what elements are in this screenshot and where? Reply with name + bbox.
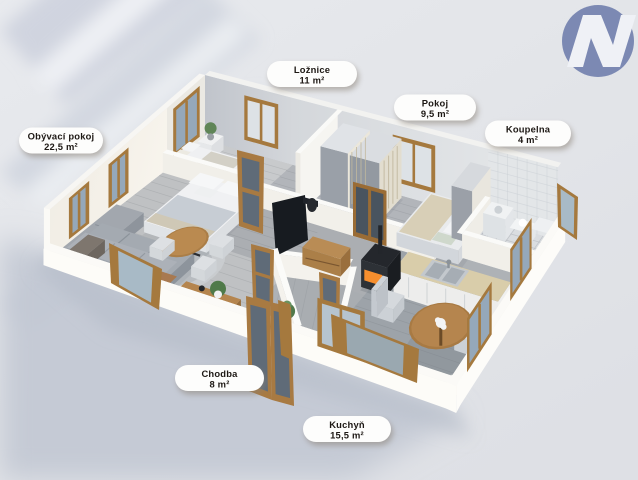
svg-text:Pokoj: Pokoj bbox=[422, 98, 449, 109]
svg-text:Kuchyň: Kuchyň bbox=[329, 419, 365, 430]
svg-text:15,5 m²: 15,5 m² bbox=[330, 430, 364, 441]
svg-text:Koupelna: Koupelna bbox=[506, 124, 551, 135]
svg-text:9,5 m²: 9,5 m² bbox=[421, 108, 449, 119]
svg-text:4 m²: 4 m² bbox=[518, 134, 538, 145]
svg-text:Obývací pokoj: Obývací pokoj bbox=[28, 131, 95, 142]
svg-text:Ložnice: Ložnice bbox=[294, 64, 330, 75]
svg-text:11 m²: 11 m² bbox=[300, 75, 325, 86]
svg-text:22,5 m²: 22,5 m² bbox=[44, 141, 78, 152]
svg-text:Chodba: Chodba bbox=[201, 368, 238, 379]
svg-text:8 m²: 8 m² bbox=[209, 379, 229, 390]
